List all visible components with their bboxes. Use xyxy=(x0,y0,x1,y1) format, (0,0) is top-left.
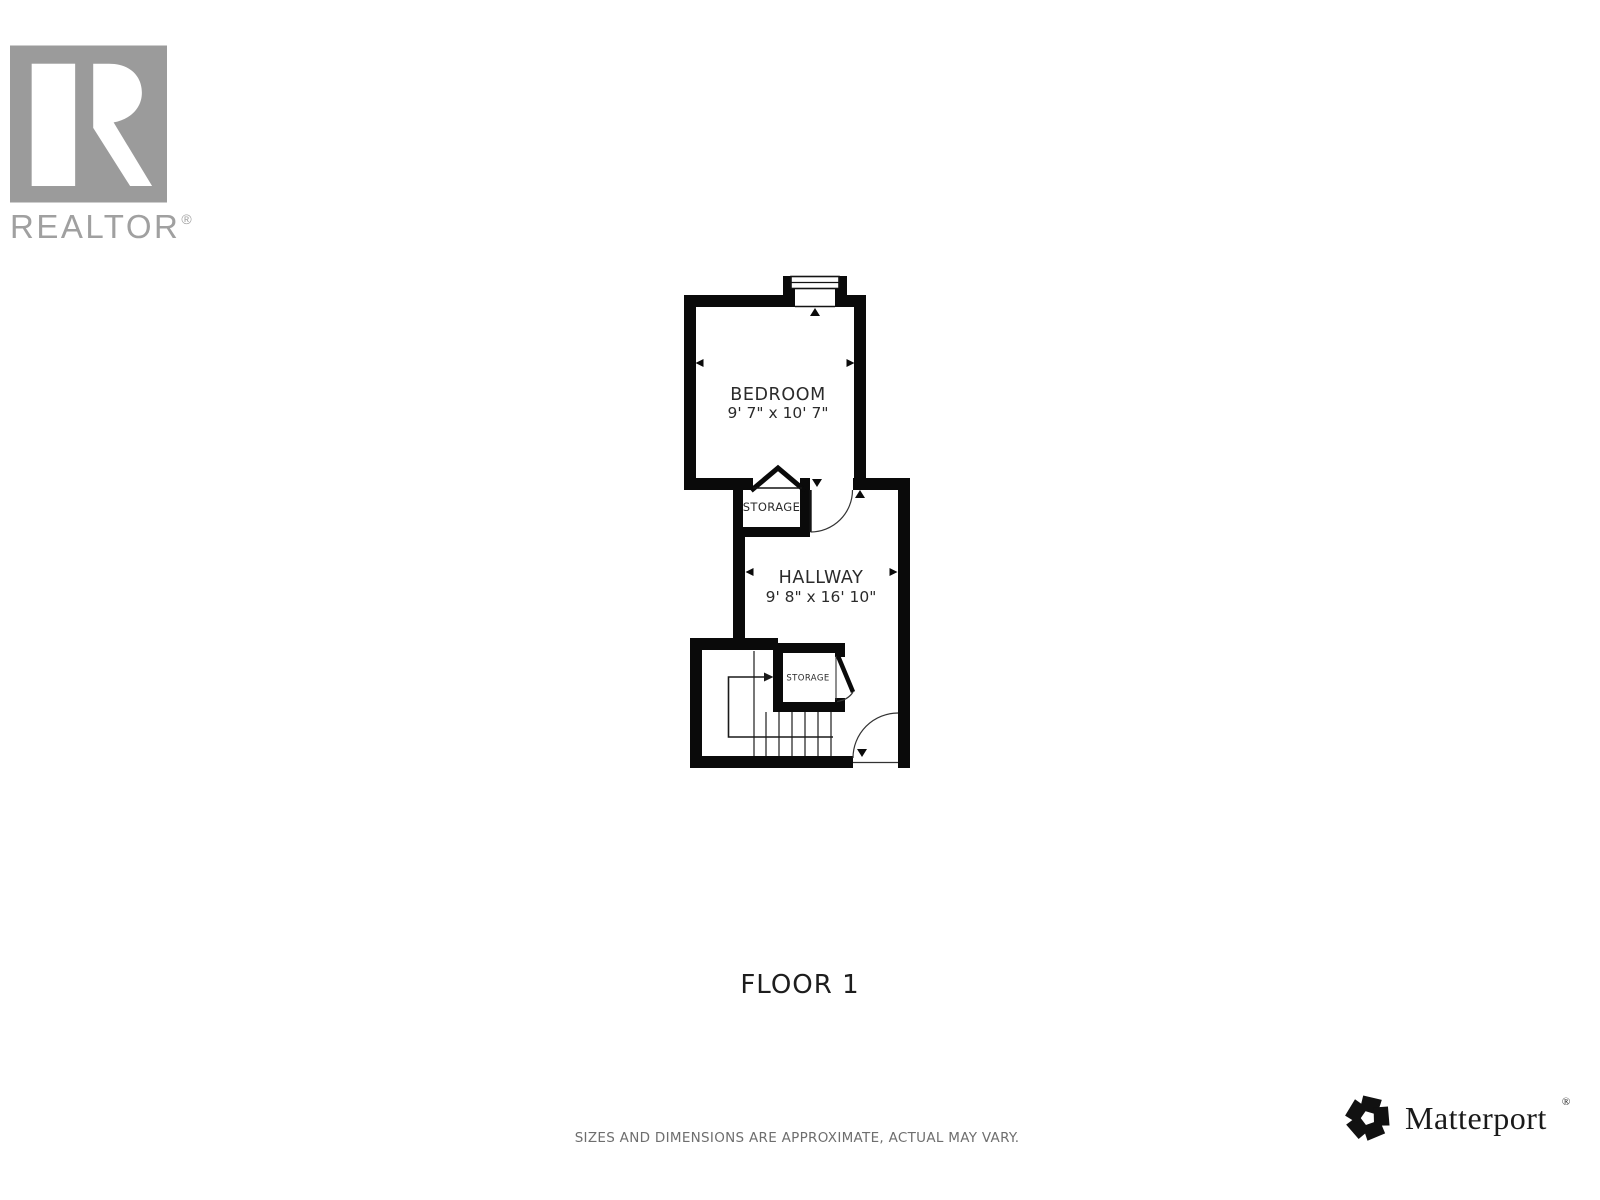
matterport-registered-mark: ® xyxy=(1562,1096,1570,1108)
wall xyxy=(835,643,845,657)
window-icon xyxy=(791,277,839,307)
door-entry xyxy=(853,713,898,763)
floor-plan-drawing: BEDROOM 9' 7" x 10' 7" HALLWAY 9' 8" x 1… xyxy=(675,260,915,780)
marker-right-icon xyxy=(847,359,855,367)
realtor-logo: REALTOR® xyxy=(10,45,192,243)
marker-right-icon xyxy=(890,568,898,576)
marker-up-icon xyxy=(855,490,865,498)
wall xyxy=(733,527,810,537)
door-swing-arc xyxy=(811,490,853,532)
matterport-wordmark: Matterport xyxy=(1405,1102,1547,1134)
realtor-registered-mark: ® xyxy=(181,211,191,227)
room-label-storage-lower: STORAGE xyxy=(786,674,829,684)
room-label-storage-upper: STORAGE xyxy=(743,500,801,514)
floorplan-page: REALTOR® xyxy=(0,0,1600,1200)
marker-down-icon xyxy=(812,479,822,487)
bifold-closet-door-icon xyxy=(753,468,803,489)
room-dimensions-bedroom: 9' 7" x 10' 7" xyxy=(728,404,829,422)
realtor-block-r-icon xyxy=(10,45,167,203)
wall xyxy=(684,295,795,307)
wall xyxy=(684,295,696,490)
wall xyxy=(773,702,845,712)
door-leaf xyxy=(838,656,853,692)
wall xyxy=(690,638,702,768)
floor-label: FLOOR 1 xyxy=(0,970,1600,1000)
matterport-logo: Matterport ® xyxy=(1344,1094,1570,1142)
marker-down-icon xyxy=(857,749,867,757)
marker-up-icon xyxy=(810,308,820,316)
room-dimensions-hallway: 9' 8" x 16' 10" xyxy=(766,588,877,606)
wall xyxy=(773,643,845,653)
wall xyxy=(733,537,745,638)
room-label-bedroom: BEDROOM xyxy=(730,385,826,405)
room-label-hallway: HALLWAY xyxy=(779,568,864,588)
marker-left-icon xyxy=(746,568,754,576)
door-bedroom-hallway xyxy=(811,490,853,532)
realtor-wordmark-text: REALTOR xyxy=(10,208,180,245)
door-lower-storage xyxy=(836,656,853,702)
wall xyxy=(690,638,778,650)
matterport-pinwheel-icon xyxy=(1344,1094,1392,1142)
walls xyxy=(684,276,910,768)
realtor-wordmark: REALTOR® xyxy=(10,210,192,243)
marker-left-icon xyxy=(696,359,704,367)
wall xyxy=(773,643,783,712)
wall xyxy=(854,295,866,490)
wall xyxy=(898,478,910,768)
wall xyxy=(690,756,853,768)
